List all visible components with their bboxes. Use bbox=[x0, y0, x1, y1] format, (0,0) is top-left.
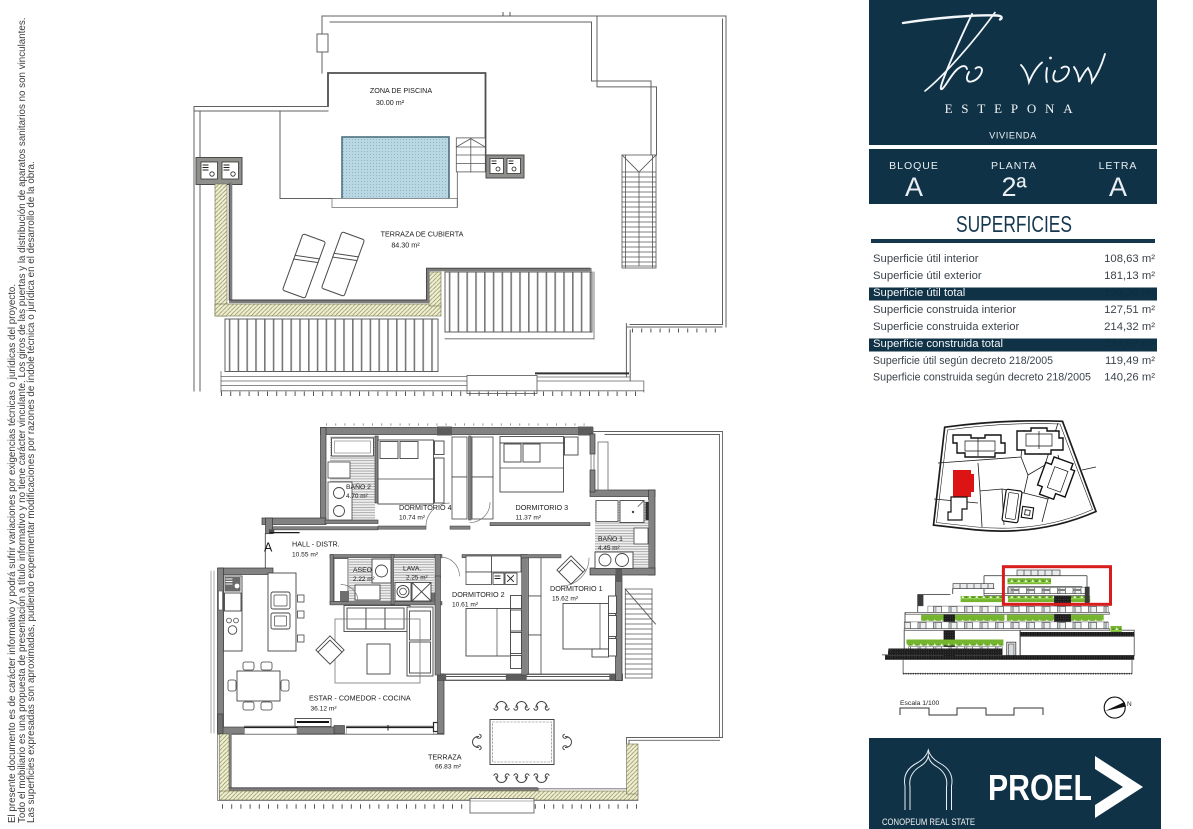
svg-text:A: A bbox=[1109, 172, 1127, 202]
svg-text:Superficie útil según decreto: Superficie útil según decreto 218/2005 bbox=[873, 355, 1053, 367]
svg-text:66.83 m²: 66.83 m² bbox=[435, 764, 462, 771]
svg-text:108,63 m²: 108,63 m² bbox=[1104, 253, 1155, 265]
svg-text:4.70 m²: 4.70 m² bbox=[346, 493, 368, 500]
svg-text:15.62 m²: 15.62 m² bbox=[552, 596, 579, 603]
svg-text:140,26 m²: 140,26 m² bbox=[1104, 372, 1155, 384]
svg-text:PROEL: PROEL bbox=[988, 767, 1092, 808]
svg-text:TERRAZA: TERRAZA bbox=[428, 753, 462, 762]
svg-text:181,13 m²: 181,13 m² bbox=[1104, 270, 1155, 282]
svg-text:Escala 1/100: Escala 1/100 bbox=[900, 700, 940, 707]
svg-text:Superficie útil total: Superficie útil total bbox=[873, 287, 965, 299]
svg-text:36.12 m²: 36.12 m² bbox=[311, 706, 338, 713]
svg-text:BAÑO 1: BAÑO 1 bbox=[598, 534, 623, 543]
svg-text:ZONA DE PISCINA: ZONA DE PISCINA bbox=[370, 86, 433, 95]
svg-text:10.61 m²: 10.61 m² bbox=[452, 602, 479, 609]
svg-text:DORMITORIO 3: DORMITORIO 3 bbox=[516, 503, 569, 512]
svg-text:SUPERFICIES: SUPERFICIES bbox=[956, 211, 1072, 237]
svg-text:BLOQUE: BLOQUE bbox=[889, 160, 939, 172]
svg-text:VIVIENDA: VIVIENDA bbox=[989, 131, 1037, 141]
svg-text:A: A bbox=[264, 541, 273, 555]
svg-text:LETRA: LETRA bbox=[1099, 160, 1138, 172]
svg-text:Superficie construida según de: Superficie construida según decreto 218/… bbox=[873, 372, 1091, 384]
svg-text:LAVA.: LAVA. bbox=[403, 566, 421, 573]
svg-text:30.00 m²: 30.00 m² bbox=[376, 98, 405, 107]
svg-text:A: A bbox=[905, 172, 923, 202]
svg-text:PLANTA: PLANTA bbox=[991, 160, 1037, 172]
svg-text:10.55 m²: 10.55 m² bbox=[292, 552, 319, 559]
svg-text:CONOPEUM REAL STATE: CONOPEUM REAL STATE bbox=[882, 817, 975, 827]
svg-text:DORMITORIO 4: DORMITORIO 4 bbox=[399, 503, 452, 512]
svg-text:Superficie construida exterior: Superficie construida exterior bbox=[873, 321, 1020, 333]
svg-text:BAÑO 2: BAÑO 2 bbox=[346, 482, 371, 491]
svg-text:4.45 m²: 4.45 m² bbox=[598, 545, 620, 552]
svg-text:Superficie construida interior: Superficie construida interior bbox=[873, 304, 1016, 316]
svg-text:Superficie útil exterior: Superficie útil exterior bbox=[873, 270, 982, 282]
svg-text:N: N bbox=[1127, 701, 1132, 708]
svg-text:127,51 m²: 127,51 m² bbox=[1104, 304, 1155, 316]
svg-text:234,67 m²: 234,67 m² bbox=[1104, 338, 1155, 350]
svg-text:ASEO: ASEO bbox=[353, 567, 372, 574]
svg-text:2.22 m²: 2.22 m² bbox=[353, 576, 375, 583]
svg-text:DORMITORIO 1: DORMITORIO 1 bbox=[550, 584, 603, 593]
svg-text:119,49 m²: 119,49 m² bbox=[1105, 355, 1155, 367]
svg-text:199,20 m²: 199,20 m² bbox=[1104, 287, 1155, 299]
svg-text:10.74 m²: 10.74 m² bbox=[399, 515, 426, 522]
svg-text:ESTAR - COMEDOR - COCINA: ESTAR - COMEDOR - COCINA bbox=[309, 694, 411, 703]
svg-text:HALL - DISTR.: HALL - DISTR. bbox=[292, 540, 340, 549]
svg-text:ESTEPONA: ESTEPONA bbox=[945, 101, 1082, 116]
svg-text:84.30 m²: 84.30 m² bbox=[391, 241, 420, 250]
svg-text:2.25 m²: 2.25 m² bbox=[406, 575, 428, 582]
svg-text:TERRAZA DE CUBIERTA: TERRAZA DE CUBIERTA bbox=[381, 230, 464, 239]
svg-text:2ª: 2ª bbox=[1001, 172, 1027, 202]
svg-text:11.37 m²: 11.37 m² bbox=[516, 515, 542, 522]
svg-text:Superficie construida total: Superficie construida total bbox=[873, 338, 1003, 350]
svg-text:DORMITORIO 2: DORMITORIO 2 bbox=[452, 590, 505, 599]
svg-text:Superficie útil interior: Superficie útil interior bbox=[873, 253, 979, 265]
svg-text:214,32 m²: 214,32 m² bbox=[1104, 321, 1155, 333]
